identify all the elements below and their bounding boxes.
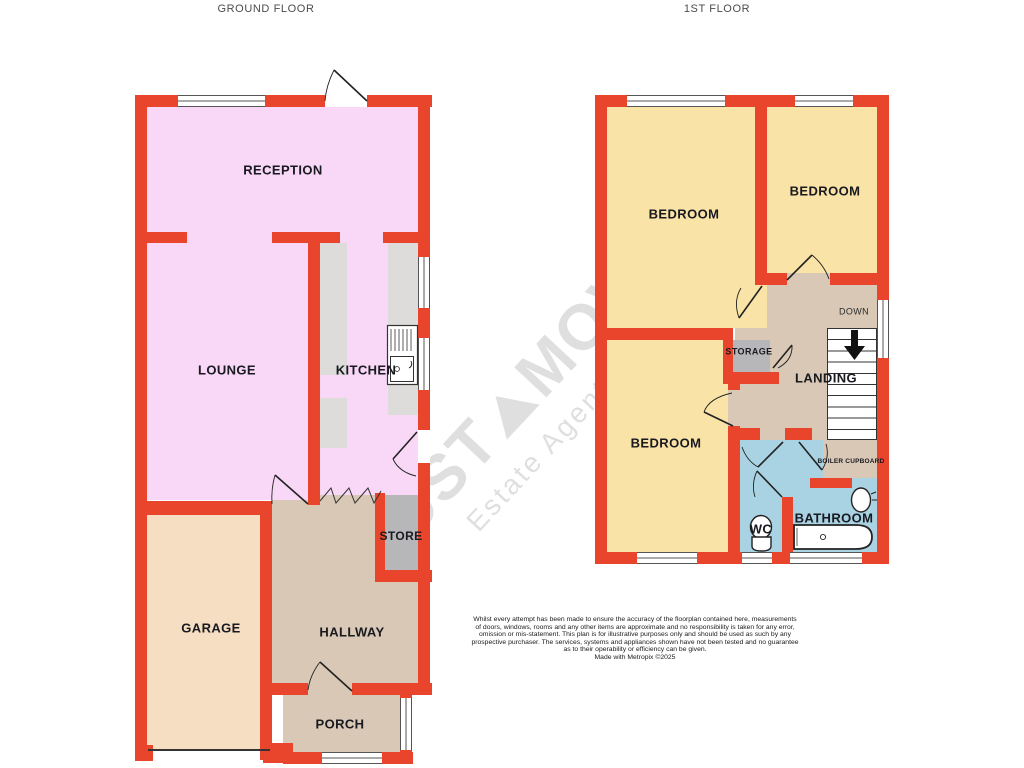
kitchen-counter [388, 243, 418, 415]
wall-segment [830, 273, 889, 285]
wall-segment [418, 95, 430, 695]
first-floor-title: 1ST FLOOR [640, 3, 794, 15]
wall-segment [263, 743, 293, 763]
wall-segment [735, 428, 760, 440]
ground-floor-title: GROUND FLOOR [180, 3, 352, 15]
disclaimer-line: Made with Metropix ©2025 [455, 654, 815, 662]
window [627, 95, 725, 107]
wall-segment [272, 232, 340, 243]
wall-segment [383, 232, 418, 243]
kitchen-counter [320, 398, 347, 448]
label-bedroom-left: BEDROOM [649, 208, 720, 221]
label-kitchen: KITCHEN [336, 364, 397, 377]
disclaimer-line: as to their operability or efficiency ca… [455, 646, 815, 654]
wall-segment [595, 328, 723, 340]
disclaimer-line: prospective purchaser. The services, sys… [455, 639, 815, 647]
wall-segment [785, 428, 812, 440]
window [795, 95, 853, 107]
disclaimer-line: omission or mis-statement. This plan is … [455, 631, 815, 639]
door-opening [728, 390, 740, 426]
window [178, 95, 265, 107]
wall-segment [352, 683, 432, 695]
disclaimer-line: of doors, windows, rooms and any other i… [455, 624, 815, 632]
label-bedroom-bottom: BEDROOM [631, 437, 702, 450]
wall-segment [135, 745, 153, 761]
porch-door [322, 752, 382, 764]
wall-segment [375, 570, 432, 582]
wall-segment [755, 107, 767, 285]
wall-segment [135, 232, 187, 243]
label-down: DOWN [839, 308, 869, 317]
window [742, 552, 772, 564]
label-wc: WC [750, 523, 772, 536]
floorplan-canvas: GROUND FLOOR 1ST FLOOR JUSTMOVE Estate A… [0, 0, 1024, 768]
window [790, 552, 862, 564]
window [877, 300, 889, 358]
wall-segment [308, 232, 320, 505]
label-lounge: LOUNGE [198, 364, 256, 377]
front-door [325, 70, 367, 101]
window [637, 552, 697, 564]
label-landing: LANDING [795, 372, 857, 385]
wall-segment [260, 515, 272, 760]
disclaimer: Whilst every attempt has been made to en… [455, 616, 815, 662]
label-reception: RECEPTION [243, 164, 322, 177]
label-garage: GARAGE [181, 622, 240, 635]
wall-segment [755, 273, 787, 285]
window [418, 257, 430, 308]
label-porch: PORCH [316, 718, 365, 731]
wall-segment [725, 95, 795, 107]
label-hallway: HALLWAY [319, 626, 384, 639]
door-opening [418, 430, 430, 463]
wall-segment [135, 95, 147, 760]
wall-segment [272, 683, 308, 695]
label-bedroom-right: BEDROOM [790, 185, 861, 198]
window [400, 698, 412, 750]
disclaimer-line: Whilst every attempt has been made to en… [455, 616, 815, 624]
wall-segment [135, 501, 272, 515]
wall-segment [810, 478, 852, 488]
label-boiler-cupboard: BOILER CUPBOARD [818, 459, 885, 466]
window [418, 338, 430, 390]
label-store: STORE [379, 530, 422, 542]
wall-segment [723, 372, 779, 384]
kitchen-counter [320, 243, 347, 375]
label-storage: STORAGE [725, 348, 772, 357]
label-bathroom: BATHROOM [795, 512, 874, 525]
